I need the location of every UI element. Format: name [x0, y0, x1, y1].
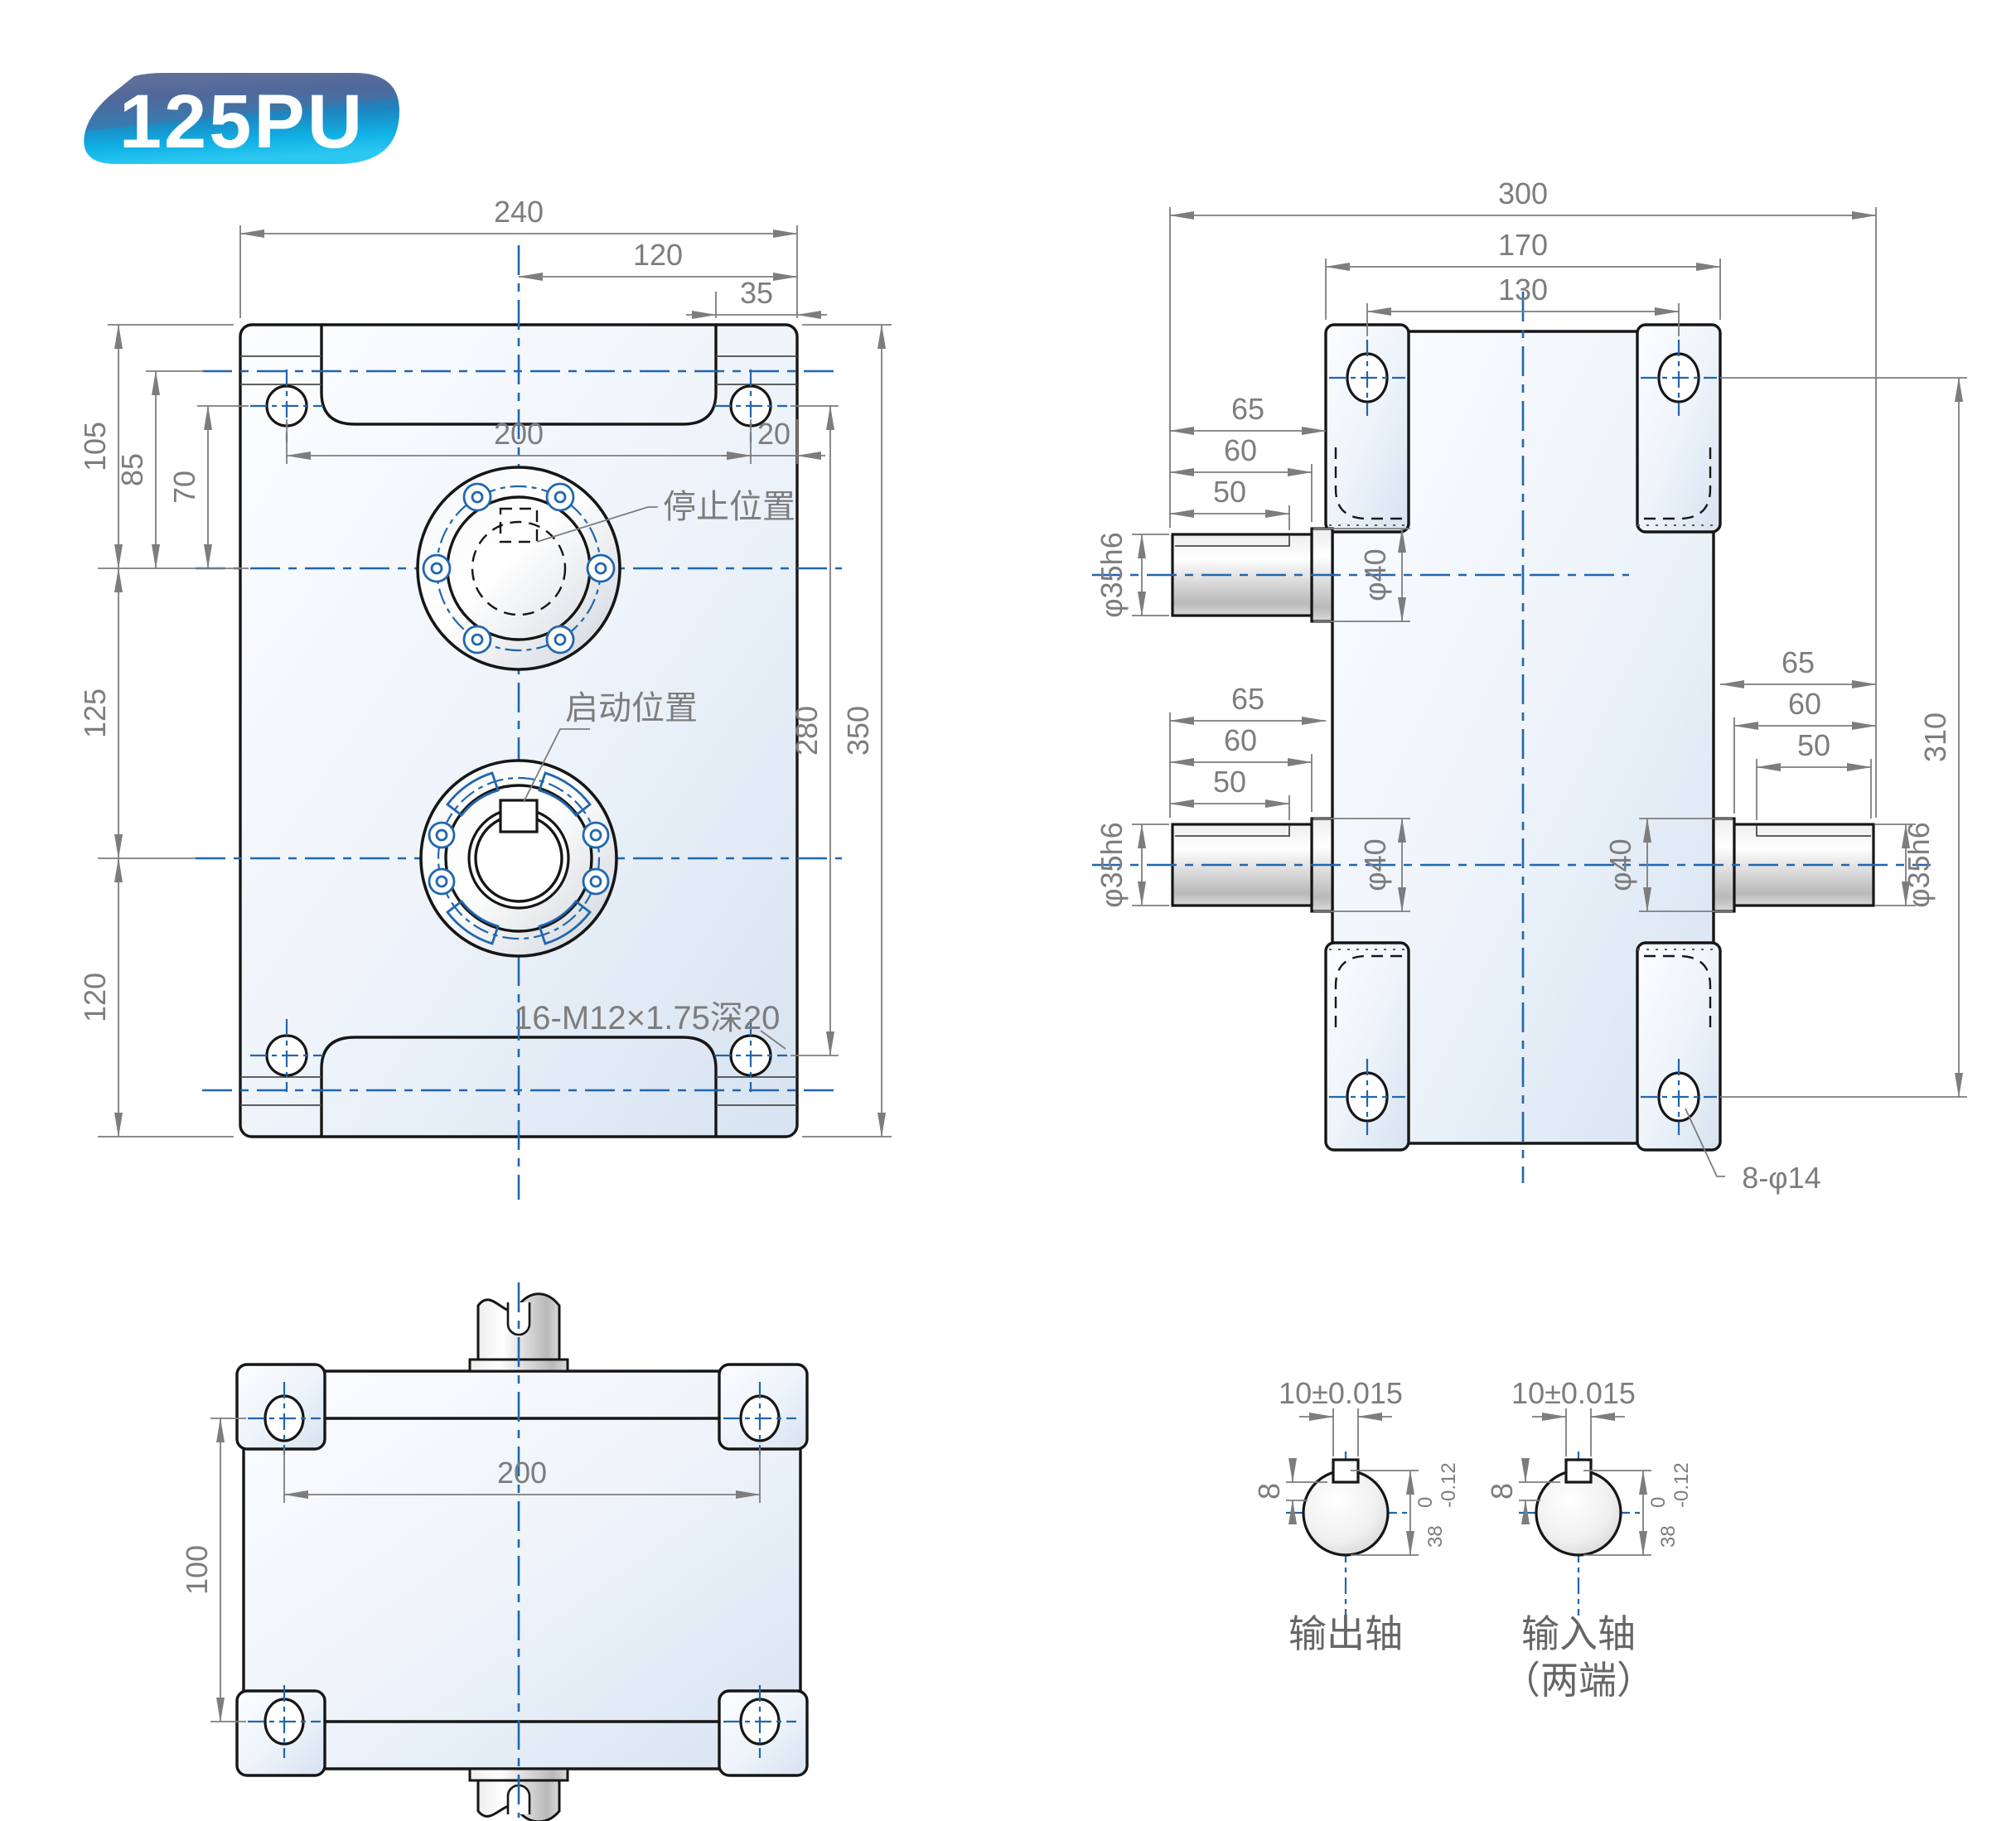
- front-view: 240 120 35 200 20 105 85: [78, 195, 892, 1200]
- dim-front-hole-span-v: 280: [790, 706, 824, 756]
- dim-section-dia: 38 0 -0.12: [1647, 1462, 1693, 1548]
- dim-front-70: 70: [167, 471, 201, 504]
- dim-front-ear: 35: [740, 276, 773, 310]
- svg-text:0: 0: [1647, 1497, 1670, 1508]
- dim-key-depth: 8: [1252, 1483, 1286, 1500]
- front-top-flange: [418, 467, 620, 669]
- dim-key-50: 50: [1213, 765, 1246, 799]
- label-start-position: 启动位置: [565, 690, 698, 727]
- dim-front-85: 85: [115, 453, 149, 486]
- dim-boss-60: 60: [1224, 433, 1257, 467]
- dim-front-120: 120: [78, 973, 112, 1022]
- drawing-canvas: 125PU: [0, 0, 2016, 1821]
- svg-text:-0.12: -0.12: [1670, 1462, 1693, 1508]
- dim-key-width: 10±0.015: [1279, 1376, 1403, 1410]
- dim-section-dia: 38 0 -0.12: [1414, 1462, 1460, 1548]
- dim-front-hole-span: 200: [494, 417, 544, 451]
- front-bottom-flange: [421, 761, 616, 956]
- dim-front-105: 105: [78, 422, 112, 471]
- label-lug-holes: 8-φ14: [1742, 1161, 1820, 1195]
- dim-bore-dia: φ40: [1358, 838, 1392, 891]
- svg-text:38: 38: [1657, 1525, 1680, 1548]
- section-input-shaft: 10±0.015 8 38 0 -0.12 输入轴 （两端）: [1485, 1376, 1693, 1702]
- section-output-shaft: 10±0.015 8 38 0 -0.12 输出轴: [1252, 1376, 1460, 1655]
- svg-text:-0.12: -0.12: [1438, 1462, 1460, 1508]
- badge-label: 125PU: [119, 80, 365, 164]
- keyway: [500, 800, 537, 832]
- side-view: 300 170 130 65 60 50 φ35h6 φ40: [1092, 176, 1967, 1195]
- dim-front-edge-offset: 20: [757, 417, 790, 451]
- engineering-drawing-page: 125PU: [0, 0, 2016, 1821]
- dim-shaft-65: 65: [1782, 645, 1815, 679]
- dim-key-50: 50: [1797, 728, 1830, 762]
- dim-side-hole-span: 130: [1498, 273, 1548, 307]
- svg-text:0: 0: [1414, 1497, 1437, 1508]
- label-thread-spec: 16-M12×1.75深20: [514, 1000, 780, 1036]
- dim-side-height: 310: [1918, 712, 1952, 762]
- dim-shaft-65: 65: [1231, 682, 1264, 716]
- dim-bore-dia: φ40: [1358, 548, 1392, 601]
- dim-key-width: 10±0.015: [1511, 1376, 1636, 1410]
- dim-shaft-dia: φ35h6: [1095, 822, 1129, 907]
- dim-bottom-vert: 100: [180, 1545, 214, 1595]
- model-badge: 125PU: [84, 73, 399, 164]
- dim-shaft-dia: φ35h6: [1902, 822, 1936, 907]
- label-input-shaft: 输入轴: [1521, 1612, 1636, 1655]
- dim-boss-60: 60: [1788, 687, 1821, 721]
- dim-front-125: 125: [78, 688, 112, 738]
- bottom-body: [244, 1371, 800, 1769]
- dim-side-lug-width: 170: [1498, 228, 1548, 262]
- svg-text:38: 38: [1424, 1525, 1447, 1548]
- label-stop-position: 停止位置: [663, 489, 795, 525]
- dim-front-half-width: 120: [633, 238, 683, 272]
- label-input-shaft-note: （两端）: [1502, 1659, 1655, 1702]
- dim-key-50: 50: [1213, 475, 1246, 509]
- dim-bore-dia: φ40: [1603, 838, 1637, 891]
- dim-bottom-hole-span: 200: [497, 1456, 547, 1490]
- dim-shaft-65: 65: [1231, 392, 1264, 426]
- dim-key-depth: 8: [1485, 1483, 1519, 1500]
- bottom-view: 200 100: [180, 1282, 807, 1821]
- dim-front-height: 350: [841, 706, 875, 756]
- dim-shaft-dia: φ35h6: [1095, 532, 1129, 617]
- dim-boss-60: 60: [1224, 723, 1257, 757]
- dim-side-total-width: 300: [1498, 176, 1548, 210]
- dim-front-width: 240: [494, 195, 544, 229]
- label-output-shaft: 输出轴: [1288, 1612, 1403, 1655]
